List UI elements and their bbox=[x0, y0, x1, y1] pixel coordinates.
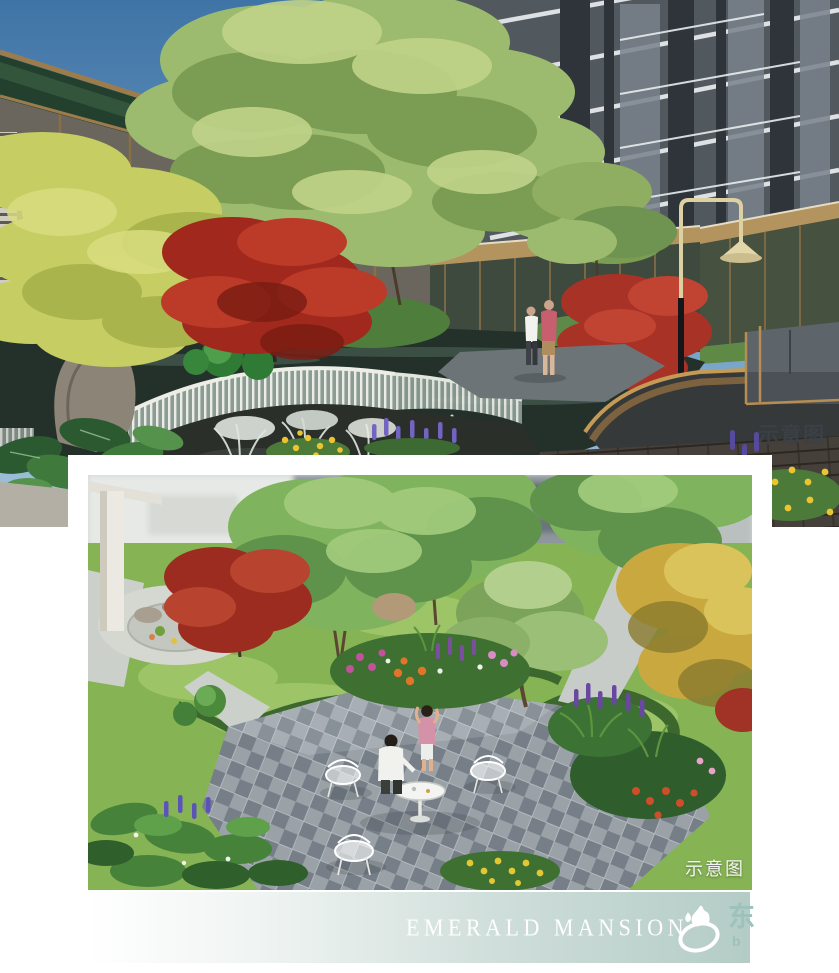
schematic-label-bottom: 示意图 bbox=[685, 855, 745, 881]
page: 示意图 bbox=[0, 0, 839, 973]
outdoor-sofa bbox=[746, 322, 839, 404]
bottom-render-image bbox=[88, 475, 752, 890]
footer-bar: EMERALD MANSION 东 b bbox=[88, 892, 750, 963]
watermark-logo: 东 b bbox=[676, 904, 768, 956]
bottom-render-card: 示意图 bbox=[68, 455, 772, 892]
courtyard-render-illustration bbox=[0, 0, 839, 527]
flame-ring-logo-icon bbox=[676, 904, 722, 956]
yellow-flower-bed bbox=[440, 851, 560, 890]
schematic-label-top: 示意图 bbox=[758, 419, 838, 449]
top-render-image bbox=[0, 0, 839, 527]
watermark-subtext: b bbox=[732, 934, 741, 948]
garden-rock bbox=[372, 593, 416, 621]
garden-plaza-illustration bbox=[88, 475, 752, 890]
watermark-char: 东 bbox=[728, 904, 755, 931]
